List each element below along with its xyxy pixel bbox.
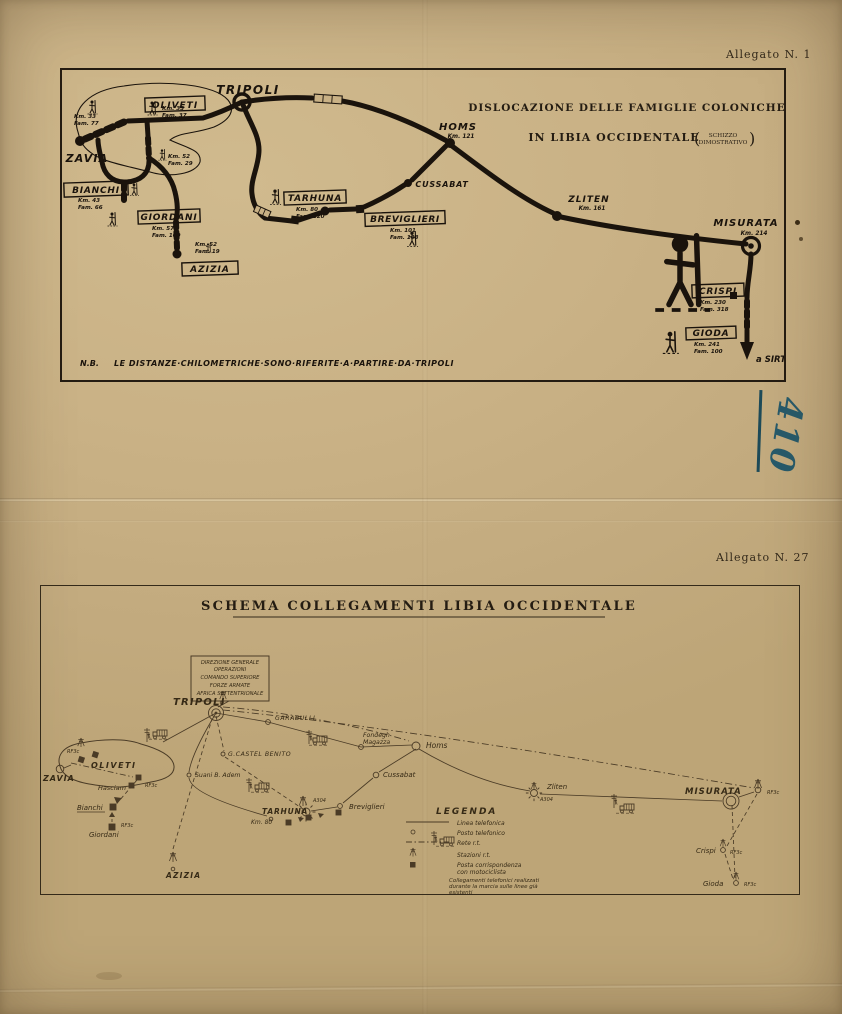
- map1-note-text: LE DISTANZE·CHILOMETRICHE·SONO·RIFERITE·…: [114, 359, 454, 368]
- map2-title-text: SCHEMA COLLEGAMENTI LIBIA OCCIDENTALE: [201, 599, 637, 614]
- legend-item3: Rete r.t.: [457, 840, 481, 847]
- map1-giordani-km: Km. 57: [152, 226, 174, 232]
- map1-azizia-km: Km. 52: [195, 242, 217, 248]
- map2-label-garabulli: GARABULLI: [275, 715, 315, 722]
- map2-label-giordani: Giordani: [89, 831, 119, 839]
- legend-sample-square: [410, 862, 416, 868]
- annot-oliveti-left-fam: Fam. 77: [74, 121, 99, 127]
- map1-label-misurata: MISURATA: [713, 218, 778, 229]
- map1-title: DISLOCAZIONE DELLE FAMIGLIE COLONICHE IN…: [468, 102, 784, 148]
- map1-gioda-km: Km. 241: [694, 342, 720, 348]
- annot-oliveti-right-km: Km. 35: [162, 106, 184, 112]
- legend-item5-line2: con motociclista: [457, 869, 506, 876]
- map2-label-tarhuna-km: Km. 80: [251, 819, 272, 826]
- map1-tarhuna-km: Km. 80: [296, 207, 318, 213]
- map2-label-zliten: Zliten: [546, 783, 567, 791]
- map1-breviglieri-fam: Fam. 103: [390, 235, 419, 241]
- legend-title: LEGENDA: [436, 807, 497, 817]
- map1-title-line1: DISLOCAZIONE DELLE FAMIGLIE COLONICHE: [468, 102, 784, 114]
- legend-item5-line1: Posta corrispondenza: [457, 862, 522, 869]
- map1-title-paren2: DIMOSTRATIVO: [699, 140, 748, 146]
- map1-note: N.B. LE DISTANZE·CHILOMETRICHE·SONO·RIFE…: [80, 359, 454, 368]
- map1-gioda-fam: Fam. 100: [694, 349, 723, 355]
- map1-label-zavia: ZAVIA: [65, 152, 109, 165]
- map1-bianchi-km: Km. 43: [78, 198, 100, 204]
- map1-label-sirte: a SIRTE: [756, 355, 784, 365]
- map2-label-misurata: MISURATA: [685, 787, 742, 797]
- map1-azizia-fam: Fam. 19: [195, 249, 220, 255]
- map2-label-gioda: Gioda: [703, 880, 723, 888]
- hq-line2: OPERAZIONI: [214, 667, 247, 673]
- hq-line1: DIREZIONE GENERALE: [201, 660, 260, 666]
- allegato-1-label: Allegato N. 1: [726, 48, 812, 61]
- station-rf3c-gioda: RF3c: [744, 882, 757, 888]
- ink-speck: [795, 220, 800, 225]
- map1-label-gioda: GIODA: [693, 329, 730, 339]
- map2-title: SCHEMA COLLEGAMENTI LIBIA OCCIDENTALE: [201, 599, 637, 617]
- station-a304-tarhuna: A304: [312, 798, 326, 804]
- map2-label-oliveti: OLIVETI: [91, 761, 136, 770]
- map1-bianchi-fam: Fam. 66: [78, 205, 103, 211]
- fold-crease: [0, 498, 842, 502]
- map2-label-crispi: Crispi: [696, 847, 716, 855]
- map2-label-fondegh2: Magazza: [363, 739, 390, 746]
- map2-label-tarhuna: TARHUNA: [262, 807, 308, 816]
- annot-oliveti-south-km: Km. 52: [168, 154, 190, 160]
- map2-legend: LEGENDA Linea telefonica Posto telefonic…: [406, 807, 540, 894]
- map1-label-azizia: AZIZIA: [189, 265, 230, 275]
- legend-sample-circle: [411, 830, 415, 834]
- legend-item2: Posto telefonico: [457, 830, 505, 837]
- ink-speck: [799, 237, 803, 241]
- map2-place-labels: TRIPOLI GARABULLI Fondegh Magazza Homs G…: [42, 697, 742, 888]
- map1-label-zliten: ZLITEN: [567, 195, 609, 205]
- map1-label-tripoli: TRIPOLI: [216, 83, 280, 97]
- map1-crispi-km: Km. 230: [700, 300, 726, 306]
- station-rf3c-misurata: RF3c: [767, 790, 780, 796]
- station-a304-zliten: A304: [539, 797, 553, 803]
- legend-item1: Linea telefonica: [457, 820, 505, 827]
- paper-stain: [96, 972, 122, 980]
- annot-oliveti-south-fam: Fam. 29: [168, 161, 193, 167]
- map1-breviglieri-km: Km. 101: [390, 228, 416, 234]
- map2-label-bianchi: Bianchi: [77, 804, 103, 812]
- map1-label-breviglieri: BREVIGLIERI: [370, 215, 440, 225]
- map2-label-suani: Suani B. Adem: [195, 772, 240, 779]
- station-rf3c-oliveti: RF3c: [67, 749, 80, 755]
- map1-label-crispi: CRISPI: [699, 287, 737, 297]
- map2-label-fondegh1: Fondegh: [363, 732, 390, 739]
- scanned-document-page: Allegato N. 1 Allegato N. 27 410 DISLOCA…: [0, 0, 842, 1014]
- map1-panel: DISLOCAZIONE DELLE FAMIGLIE COLONICHE IN…: [60, 68, 786, 382]
- map2-label-zavia: ZAVIA: [42, 774, 75, 783]
- map1-label-misurata-km: Km. 214: [741, 231, 768, 237]
- annot-oliveti-left-km: Km. 33: [74, 114, 96, 120]
- legend-sample-antenna: [410, 848, 416, 857]
- map1-tarhuna-fam: Fam. 120: [296, 214, 325, 220]
- map2-label-hasciam: Hasciam: [98, 784, 126, 792]
- map2-lines: [64, 707, 757, 879]
- map2-svg: SCHEMA COLLEGAMENTI LIBIA OCCIDENTALE: [41, 586, 799, 894]
- map2-panel: SCHEMA COLLEGAMENTI LIBIA OCCIDENTALE: [40, 585, 800, 895]
- map2-label-tripoli: TRIPOLI: [173, 697, 226, 708]
- map1-giordani-fam: Fam. 100: [152, 233, 181, 239]
- annot-oliveti-right-fam: Fam. 37: [162, 113, 187, 119]
- map1-label-homs: HOMS: [439, 122, 477, 133]
- hq-line3: COMANDO SUPERIORE: [201, 675, 261, 681]
- hq-line4: FORZE ARMATE: [210, 683, 251, 689]
- sirte-arrowhead: [740, 342, 754, 360]
- fold-crease: [0, 983, 842, 993]
- map1-label-zliten-km: Km. 161: [579, 206, 606, 212]
- map2-label-azizia: AZIZIA: [165, 871, 201, 880]
- map2-label-cussabat: Cussabat: [383, 771, 416, 779]
- allegato-27-label: Allegato N. 27: [716, 551, 810, 564]
- map1-label-homs-km: Km. 121: [448, 134, 475, 140]
- legend-item6-line2: durante la marcia sulle linee già: [449, 883, 538, 890]
- legend-item6-line3: esistenti: [449, 890, 473, 894]
- station-rf3c-crispi: RF3c: [730, 850, 743, 856]
- fold-crease: [0, 520, 842, 523]
- map1-note-label: N.B.: [80, 359, 99, 368]
- paren-close: ): [749, 129, 755, 148]
- map1-label-cussabat: CUSSABAT: [415, 180, 468, 189]
- map1-label-bianchi: BIANCHI: [72, 186, 120, 196]
- map1-label-tarhuna: TARHUNA: [288, 194, 342, 204]
- station-rf3c-giordani: RF3c: [121, 823, 134, 829]
- map2-label-castel-benito: G.CASTEL BENITO: [228, 751, 291, 758]
- map1-title-line2: IN LIBIA OCCIDENTALE: [528, 131, 699, 144]
- map1-svg: DISLOCAZIONE DELLE FAMIGLIE COLONICHE IN…: [62, 70, 784, 380]
- map2-antennas: [78, 738, 762, 880]
- station-rf3c-hasciam: RF3c: [145, 783, 158, 789]
- legend-item4: Stazioni r.t.: [457, 852, 491, 859]
- map1-crispi-fam: Fam. 318: [700, 307, 729, 313]
- map2-label-breviglieri: Breviglieri: [349, 803, 385, 811]
- map1-label-giordani: GIORDANI: [140, 213, 197, 223]
- map1-title-paren1: SCHIZZO: [709, 133, 738, 139]
- handwritten-archive-number: 410: [763, 394, 811, 454]
- map2-label-homs: Homs: [426, 741, 448, 750]
